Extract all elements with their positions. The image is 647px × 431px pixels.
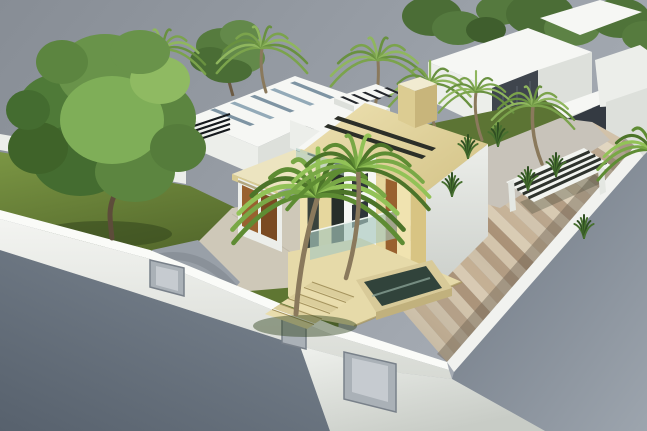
architectural-render: [0, 0, 647, 431]
tree-foliage: [110, 30, 170, 74]
tree-foliage: [6, 90, 50, 130]
palm-shadow: [253, 315, 357, 337]
tree-foliage: [8, 122, 68, 174]
tree-foliage: [36, 40, 88, 84]
tree-foliage: [150, 124, 206, 172]
villa-chimney: [398, 77, 437, 128]
